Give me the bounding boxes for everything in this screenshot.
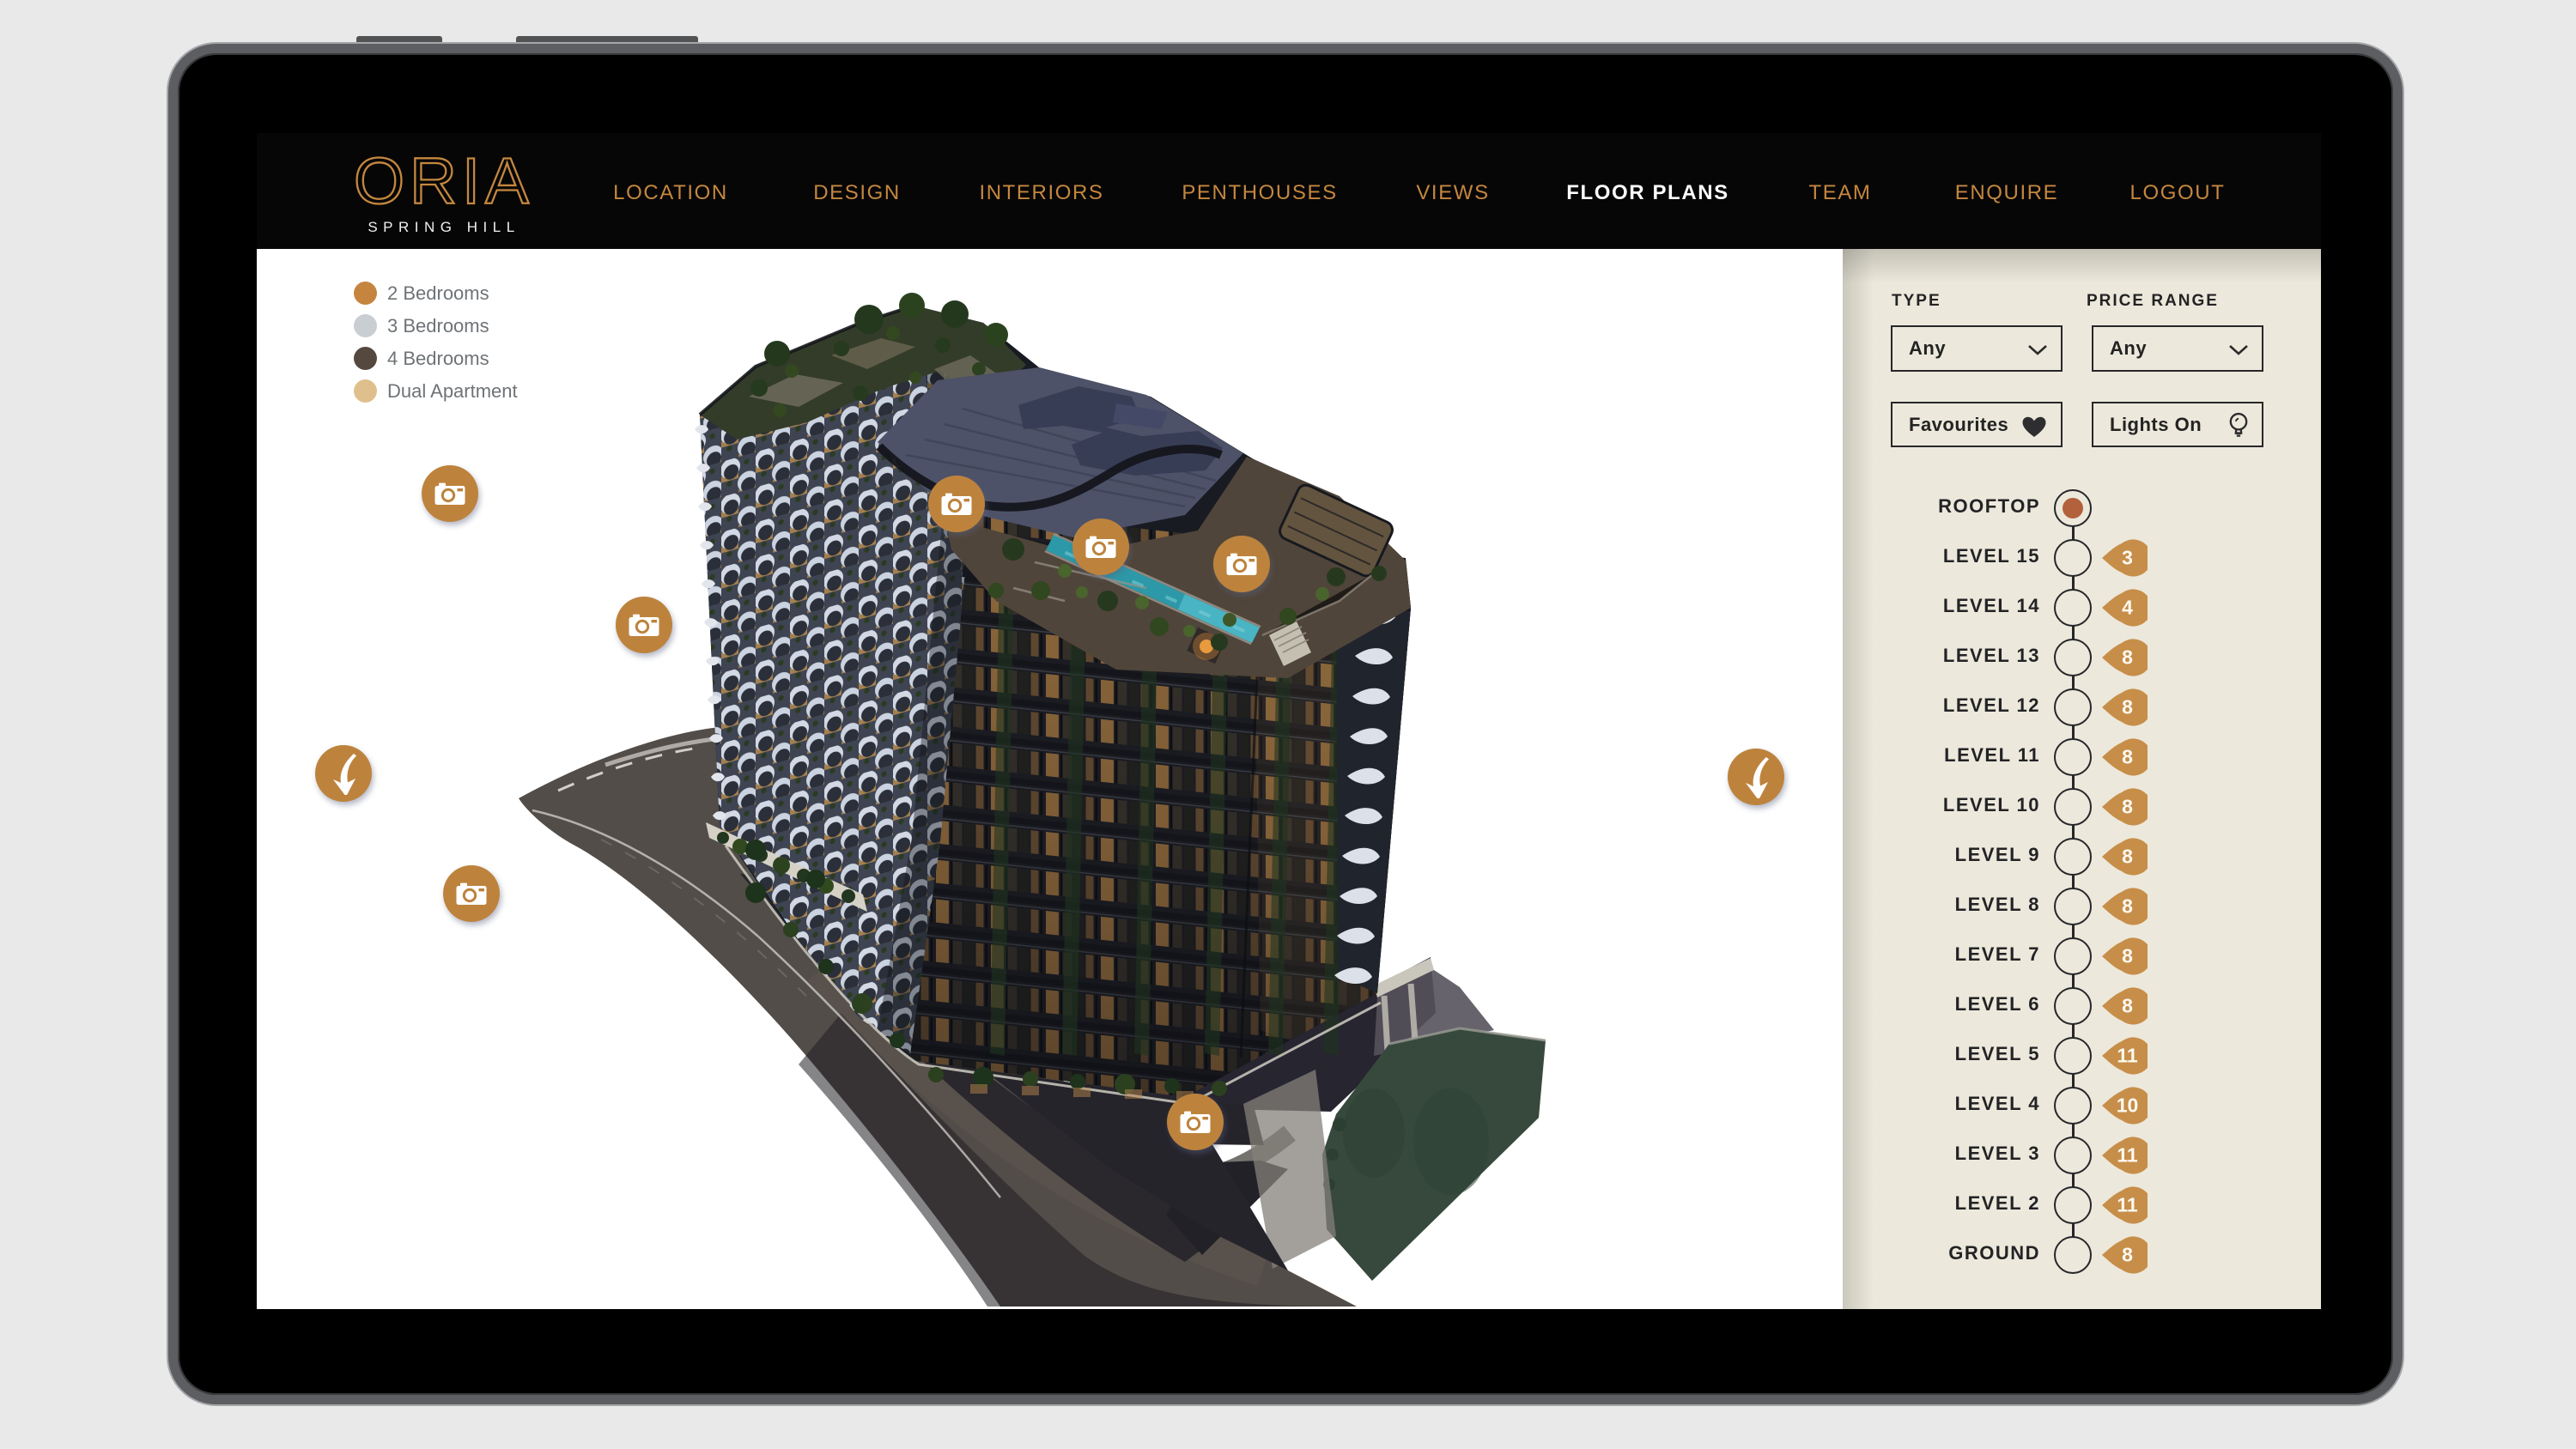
svg-text:8: 8 bbox=[2122, 945, 2133, 967]
svg-text:8: 8 bbox=[2122, 796, 2133, 818]
svg-text:8: 8 bbox=[2122, 995, 2133, 1017]
svg-text:8: 8 bbox=[2122, 646, 2133, 669]
svg-text:11: 11 bbox=[2117, 1194, 2138, 1216]
svg-text:10: 10 bbox=[2117, 1094, 2139, 1117]
svg-text:3: 3 bbox=[2122, 547, 2133, 569]
svg-text:11: 11 bbox=[2117, 1144, 2138, 1167]
svg-text:8: 8 bbox=[2122, 746, 2133, 768]
svg-text:8: 8 bbox=[2122, 696, 2133, 718]
svg-text:8: 8 bbox=[2122, 846, 2133, 868]
svg-text:8: 8 bbox=[2122, 1244, 2133, 1266]
svg-text:11: 11 bbox=[2117, 1045, 2138, 1067]
svg-text:8: 8 bbox=[2122, 895, 2133, 918]
svg-text:4: 4 bbox=[2122, 597, 2133, 619]
